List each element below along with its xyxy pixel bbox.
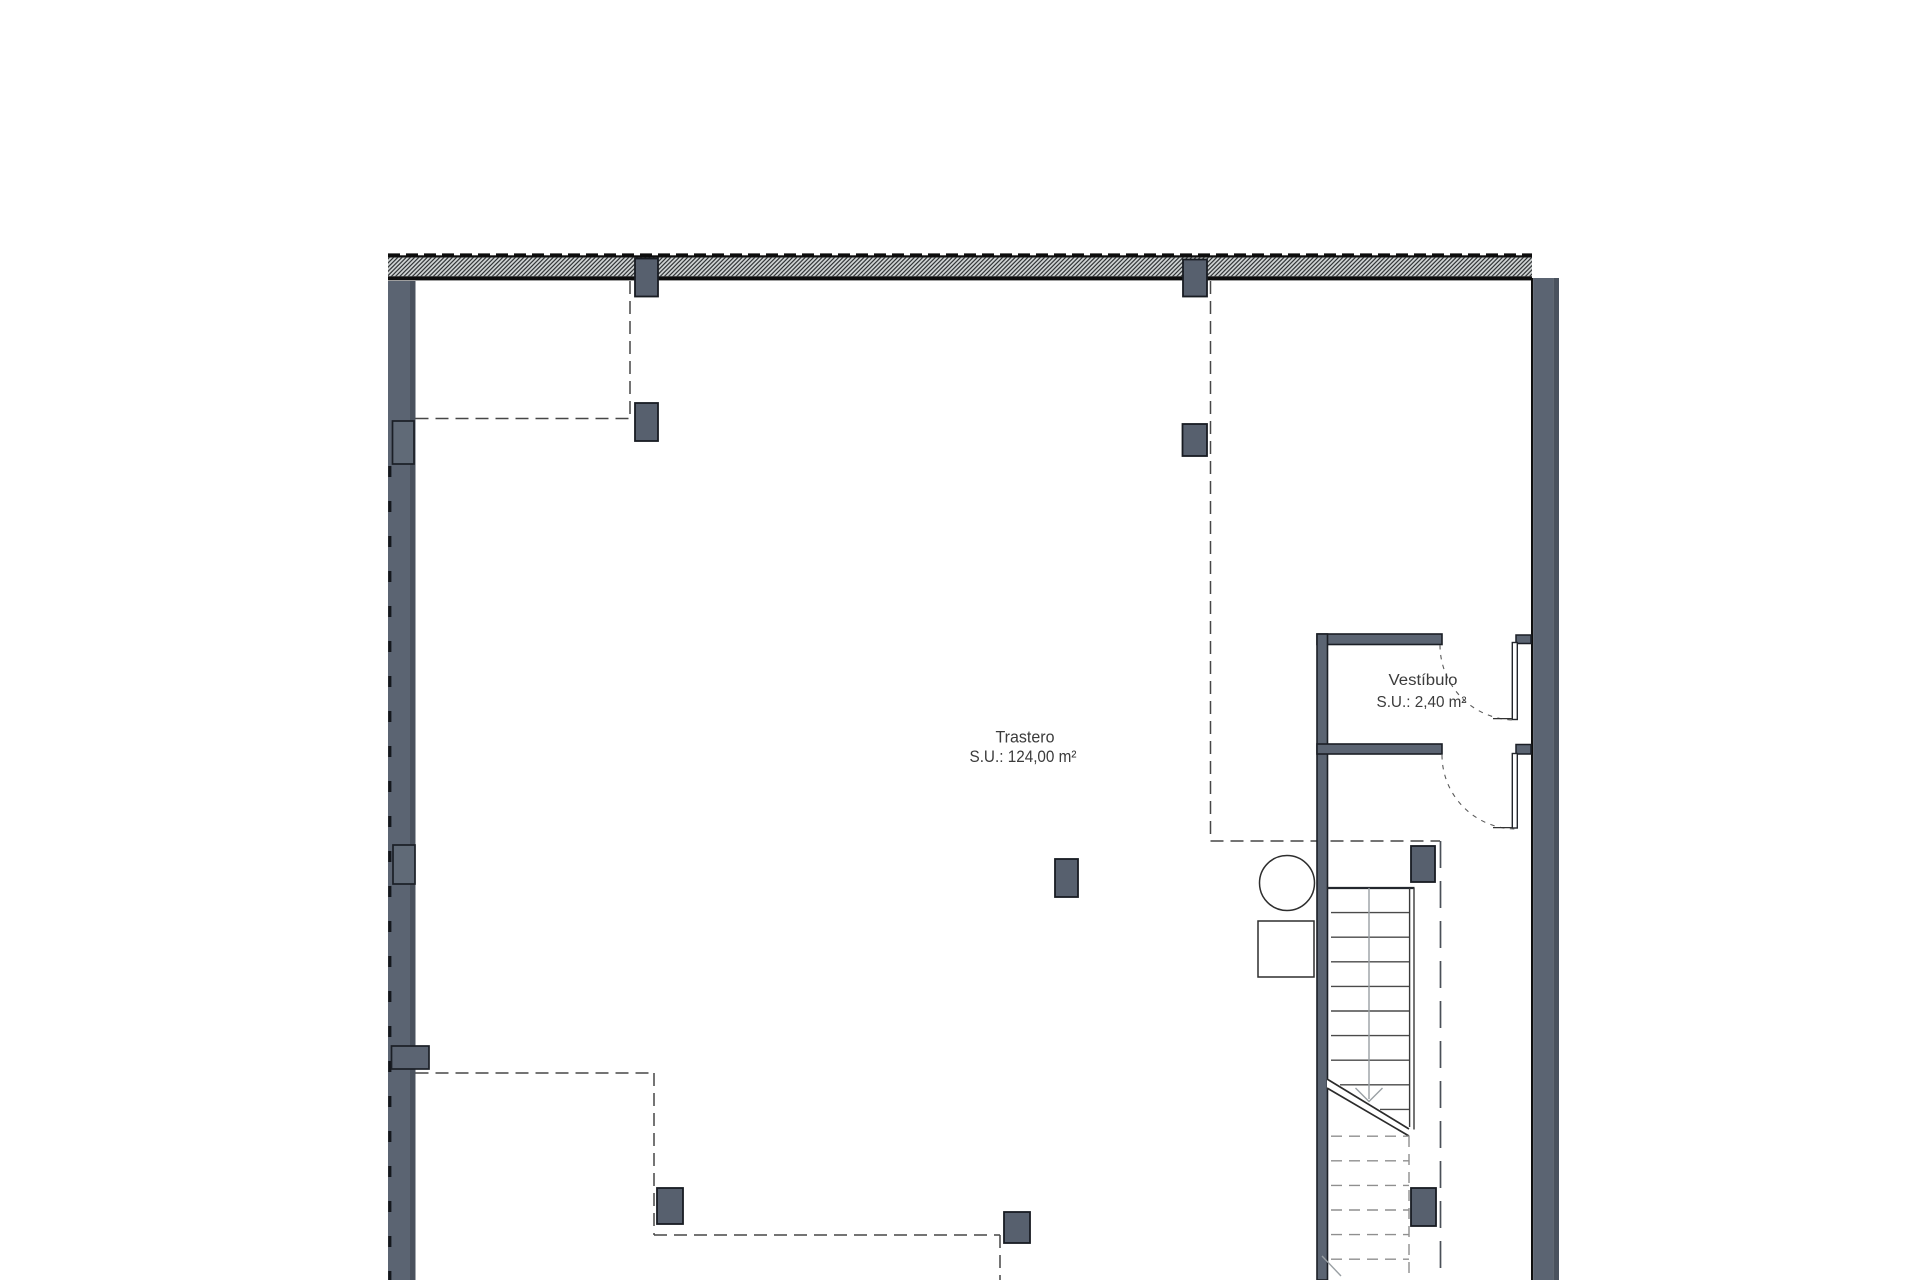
svg-text:S.U.: 2,40 m²: S.U.: 2,40 m² (1377, 694, 1467, 711)
svg-text:S.U.: 124,00 m²: S.U.: 124,00 m² (970, 748, 1077, 766)
svg-text:Trastero: Trastero (996, 729, 1055, 747)
svg-text:Vestíbulo: Vestíbulo (1389, 672, 1458, 689)
